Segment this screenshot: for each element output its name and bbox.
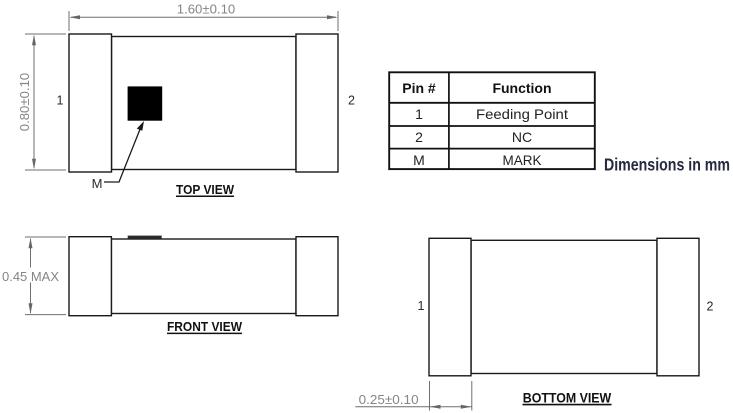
svg-text:1: 1	[57, 94, 64, 108]
svg-text:BOTTOM VIEW: BOTTOM VIEW	[523, 390, 612, 405]
svg-text:2: 2	[415, 129, 423, 145]
svg-text:Function: Function	[492, 80, 551, 96]
svg-text:M: M	[92, 176, 103, 191]
svg-text:FRONT VIEW: FRONT VIEW	[167, 319, 243, 334]
svg-text:NC: NC	[512, 129, 532, 145]
svg-text:1.60±0.10: 1.60±0.10	[177, 2, 236, 17]
svg-text:2: 2	[707, 300, 714, 314]
svg-text:0.25±0.10: 0.25±0.10	[359, 392, 419, 407]
svg-text:Dimensions in mm: Dimensions in mm	[604, 154, 730, 174]
svg-text:1: 1	[418, 299, 425, 313]
svg-text:2: 2	[348, 94, 355, 108]
svg-text:Pin #: Pin #	[402, 80, 436, 96]
svg-text:0.80±0.10: 0.80±0.10	[17, 73, 32, 132]
svg-text:0.45 MAX: 0.45 MAX	[2, 269, 59, 284]
svg-text:MARK: MARK	[503, 152, 543, 168]
svg-text:1: 1	[415, 106, 423, 122]
svg-text:M: M	[413, 152, 425, 168]
svg-text:Feeding Point: Feeding Point	[476, 106, 568, 122]
svg-text:TOP VIEW: TOP VIEW	[176, 182, 235, 197]
